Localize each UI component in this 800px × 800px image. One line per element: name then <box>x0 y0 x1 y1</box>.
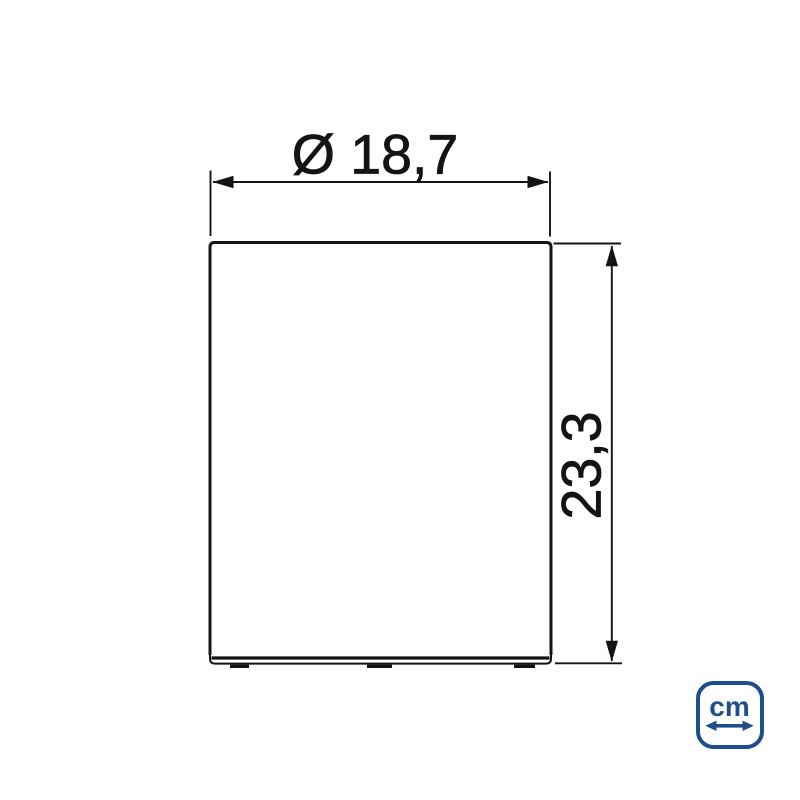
svg-text:cm: cm <box>709 691 749 722</box>
svg-text:Ø 18,7: Ø 18,7 <box>292 124 459 186</box>
svg-text:23,3: 23,3 <box>551 411 613 519</box>
